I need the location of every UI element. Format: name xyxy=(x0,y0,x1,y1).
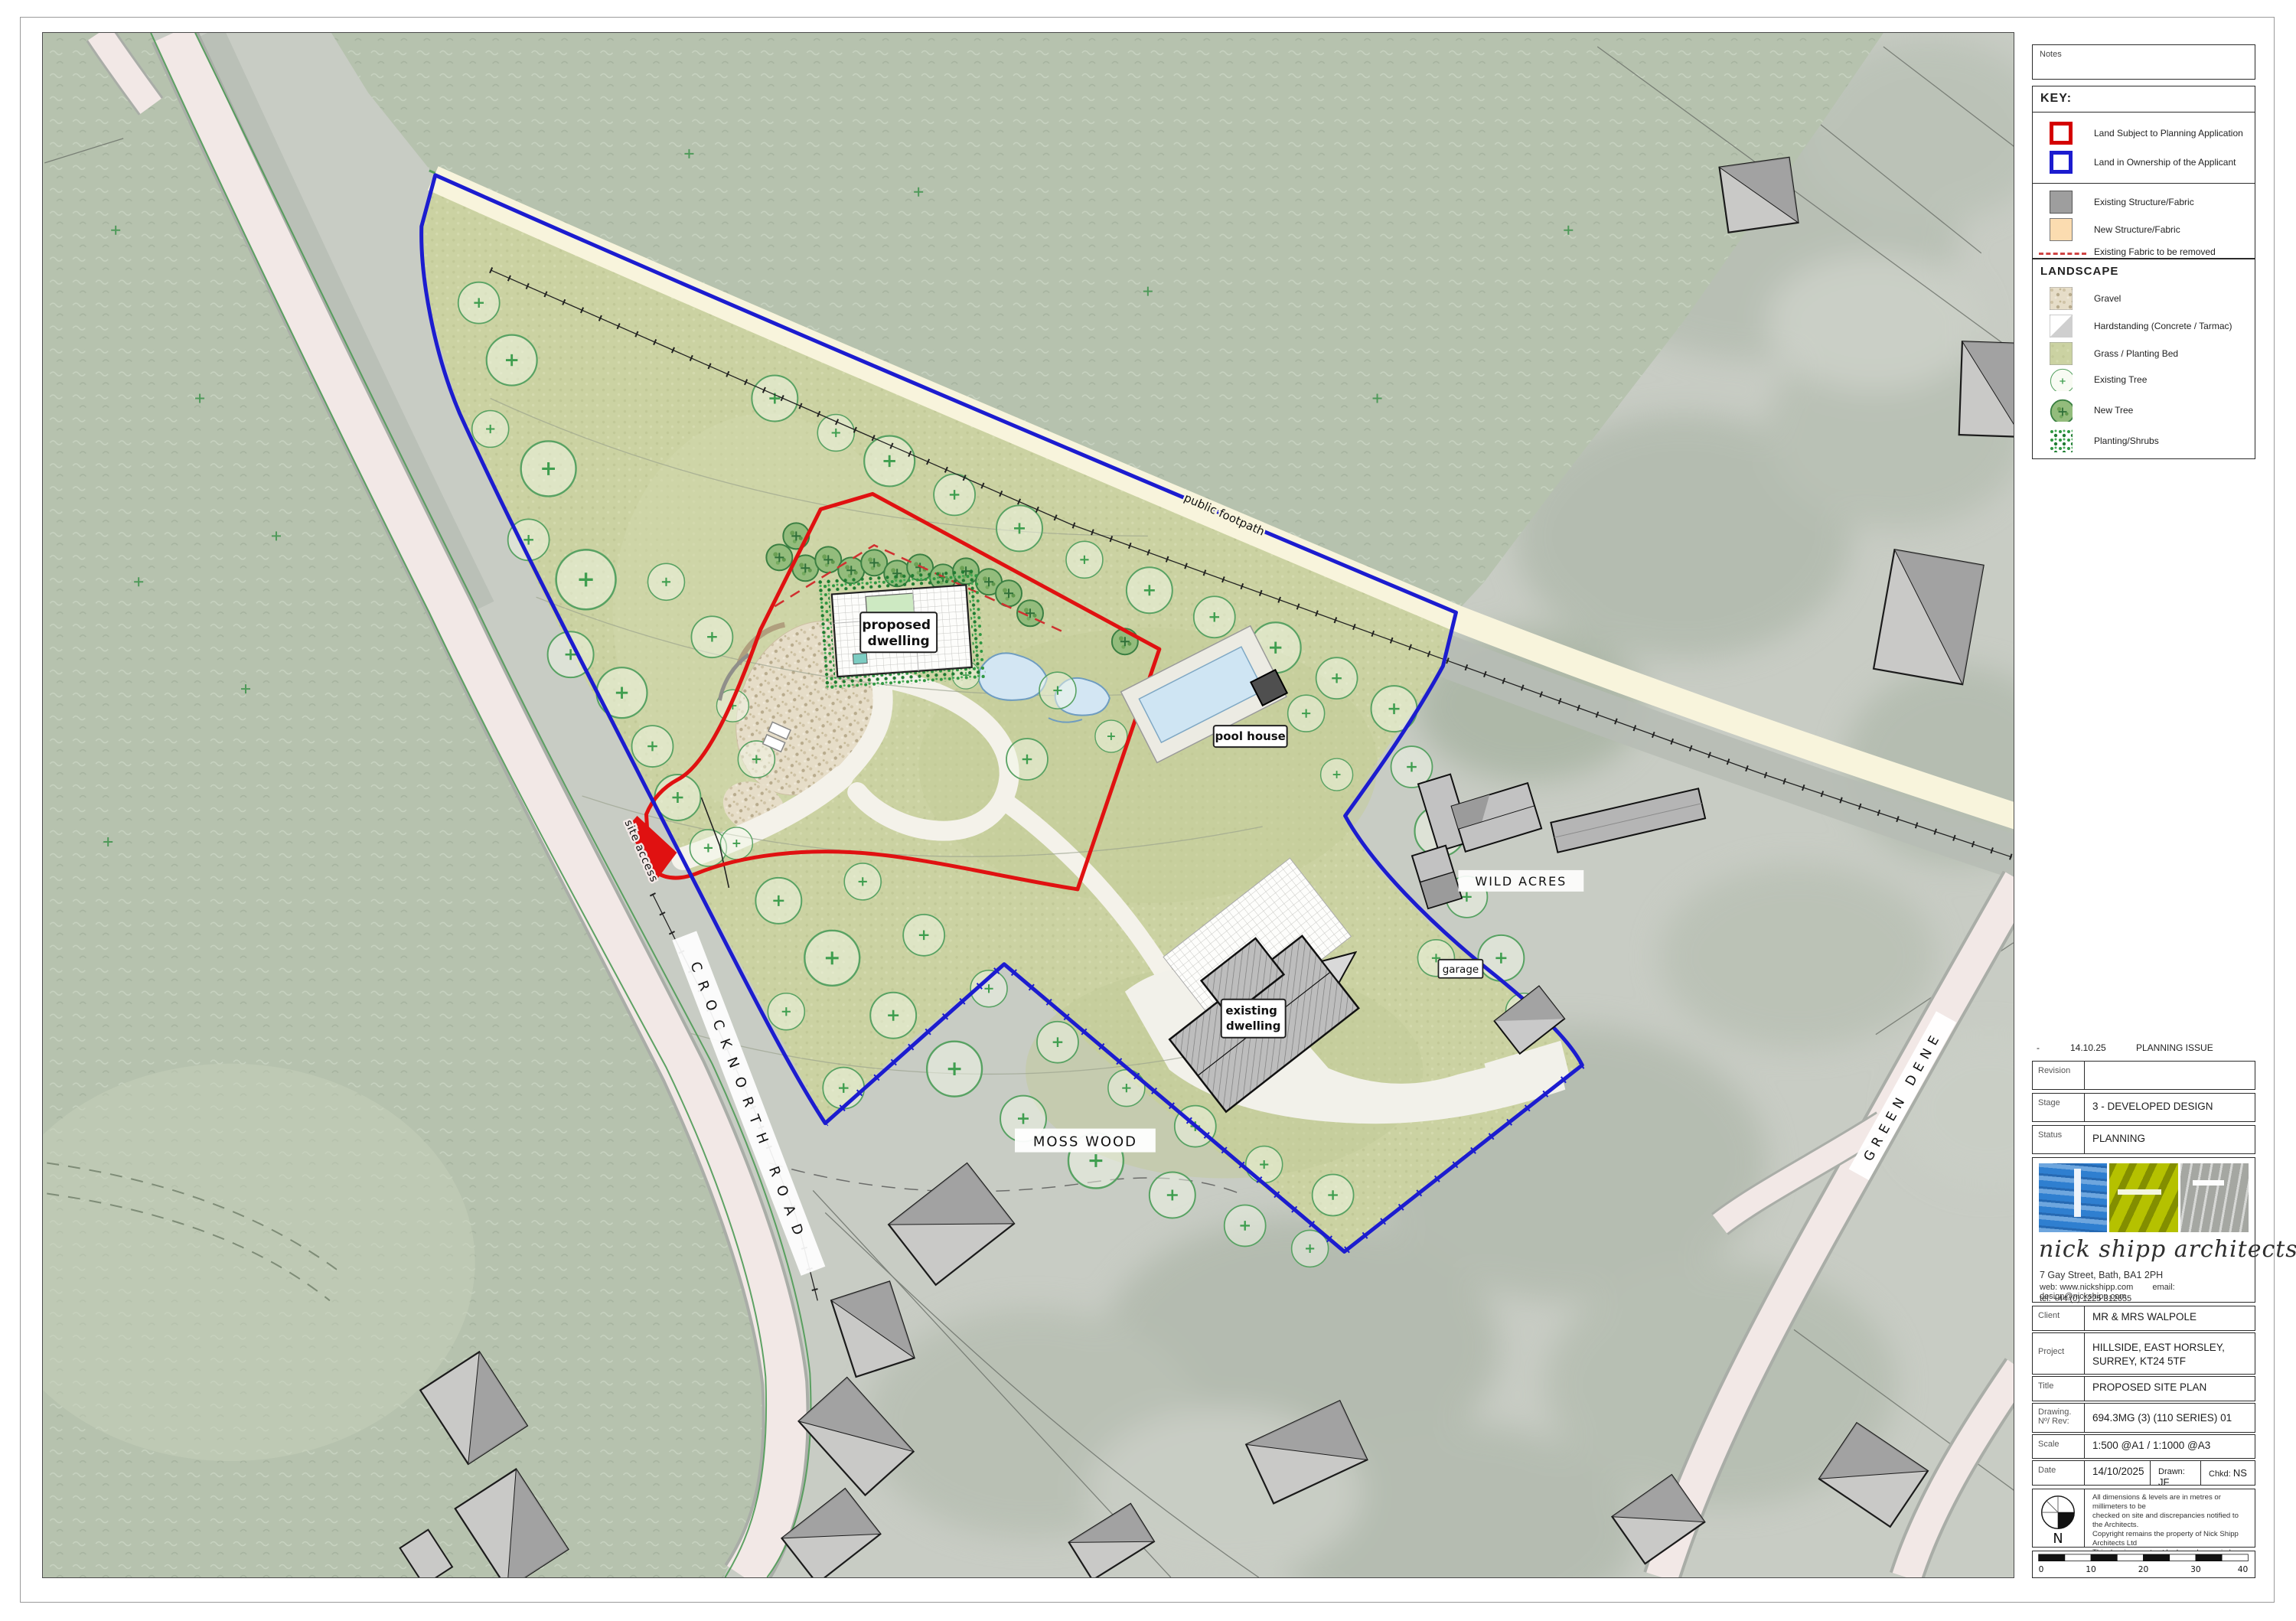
landscape-item-existing-tree: Existing Tree xyxy=(2033,368,2255,399)
gravel-swatch-icon xyxy=(2050,287,2073,310)
firm-logo-box: nick shipp architects 7 Gay Street, Bath… xyxy=(2032,1157,2255,1303)
label-wild-acres: WILD ACRES xyxy=(1458,870,1583,892)
scale-bar-graphic: 0 10 20 30 40 xyxy=(2033,1551,2254,1577)
logo-photo-blue xyxy=(2039,1163,2107,1232)
revision-note-rev: - xyxy=(2037,1042,2040,1053)
label-existing-dwelling: existing dwelling xyxy=(1221,1000,1286,1038)
key-legend: KEY: Land Subject to Planning Applicatio… xyxy=(2032,86,2255,259)
firm-web: www.nickshipp.com xyxy=(2060,1283,2133,1292)
titleblock-row-title: Title PROPOSED SITE PLAN xyxy=(2032,1376,2255,1401)
landscape-item-grass: Grass / Planting Bed xyxy=(2033,342,2255,370)
titleblock-row-client: Client MR & MRS WALPOLE xyxy=(2032,1306,2255,1331)
firm-tel: tel: +44 (0) 1225 312655 xyxy=(2040,1294,2131,1303)
key-item-ownership-boundary: Land in Ownership of the Applicant xyxy=(2033,151,2255,178)
label-garage: garage xyxy=(1438,960,1482,978)
grass-swatch-icon xyxy=(2050,342,2073,365)
revision-note-desc: PLANNING ISSUE xyxy=(2136,1042,2213,1053)
key-item-existing-structure: Existing Structure/Fabric xyxy=(2033,191,2255,218)
titleblock-row-drawing: Drawing. Nº/ Rev: 694.3MG (3) (110 SERIE… xyxy=(2032,1403,2255,1433)
svg-text:WILD ACRES: WILD ACRES xyxy=(1475,874,1567,889)
landscape-item-gravel: Gravel xyxy=(2033,287,2255,315)
landscape-legend: LANDSCAPE Gravel Hardstanding (Concrete … xyxy=(2032,259,2255,459)
existing-tree-swatch-icon xyxy=(2050,368,2073,391)
blue-boundary-swatch-icon xyxy=(2050,151,2073,174)
chkd-cell: Chkd: NS xyxy=(2201,1461,2255,1485)
hardstanding-swatch-icon xyxy=(2050,315,2073,338)
svg-text:20: 20 xyxy=(2138,1564,2149,1574)
scale-bar: 0 10 20 30 40 xyxy=(2032,1551,2255,1578)
logo-photo-green xyxy=(2109,1163,2177,1232)
titleblock-row-date: Date 14/10/2025 Drawn: JF Chkd: NS xyxy=(2032,1460,2255,1486)
label-moss-wood: MOSS WOOD xyxy=(1015,1129,1156,1153)
key-title: KEY: xyxy=(2033,86,2255,106)
north-disclaimer-box: N All dimensions & levels are in metres … xyxy=(2032,1489,2255,1548)
new-tree-swatch-icon xyxy=(2050,399,2073,422)
disclaimer: All dimensions & levels are in metres or… xyxy=(2085,1489,2255,1547)
key-item-new-structure: New Structure/Fabric xyxy=(2033,218,2255,246)
site-plan-map: public footpath site access CROCKNORTH R… xyxy=(42,32,2014,1578)
svg-text:10: 10 xyxy=(2086,1564,2096,1574)
label-proposed-dwelling: proposed dwelling xyxy=(860,612,937,652)
svg-text:garage: garage xyxy=(1443,964,1479,976)
planting-shrubs-swatch-icon xyxy=(2050,429,2073,452)
firm-address: 7 Gay Street, Bath, BA1 2PH xyxy=(2040,1270,2163,1280)
red-dashed-swatch-icon xyxy=(2039,253,2086,255)
logo-photo-gray xyxy=(2180,1163,2249,1232)
revision-note-date: 14.10.25 xyxy=(2070,1042,2106,1053)
titleblock-row-revision: Revision xyxy=(2032,1061,2255,1090)
key-item-planning-boundary: Land Subject to Planning Application xyxy=(2033,122,2255,149)
titleblock-row-scale: Scale 1:500 @A1 / 1:1000 @A3 xyxy=(2032,1434,2255,1459)
landscape-item-new-tree: New Tree xyxy=(2033,399,2255,429)
landscape-item-hardstanding: Hardstanding (Concrete / Tarmac) xyxy=(2033,315,2255,342)
drawn-cell: Drawn: JF xyxy=(2151,1461,2201,1485)
north-letter: N xyxy=(2053,1531,2063,1546)
svg-text:pool house: pool house xyxy=(1215,729,1286,743)
landscape-item-planting: Planting/Shrubs xyxy=(2033,429,2255,460)
notes-label: Notes xyxy=(2033,45,2255,59)
label-pool-house: pool house xyxy=(1214,726,1287,747)
red-boundary-swatch-icon xyxy=(2050,122,2073,145)
existing-structure-swatch-icon xyxy=(2050,191,2073,214)
north-arrow-icon: N xyxy=(2034,1491,2082,1546)
landscape-title: LANDSCAPE xyxy=(2033,259,2255,278)
titleblock-row-status: Status PLANNING xyxy=(2032,1125,2255,1154)
firm-photos xyxy=(2039,1163,2249,1232)
drawing-sheet: { "sheet": { "notes_label": "Notes" }, "… xyxy=(0,0,2296,1621)
new-structure-swatch-icon xyxy=(2050,218,2073,241)
titleblock-row-stage: Stage 3 - DEVELOPED DESIGN xyxy=(2032,1093,2255,1122)
svg-text:proposed dwelling: proposed dwelling xyxy=(862,618,935,649)
svg-text:30: 30 xyxy=(2190,1564,2201,1574)
firm-name: nick shipp architects xyxy=(2039,1236,2296,1263)
notes-box: Notes xyxy=(2032,44,2255,80)
titleblock-row-project: Project HILLSIDE, EAST HORSLEY, SURREY, … xyxy=(2032,1332,2255,1375)
svg-text:0: 0 xyxy=(2039,1564,2044,1574)
svg-text:MOSS WOOD: MOSS WOOD xyxy=(1033,1134,1137,1150)
svg-text:40: 40 xyxy=(2238,1564,2249,1574)
